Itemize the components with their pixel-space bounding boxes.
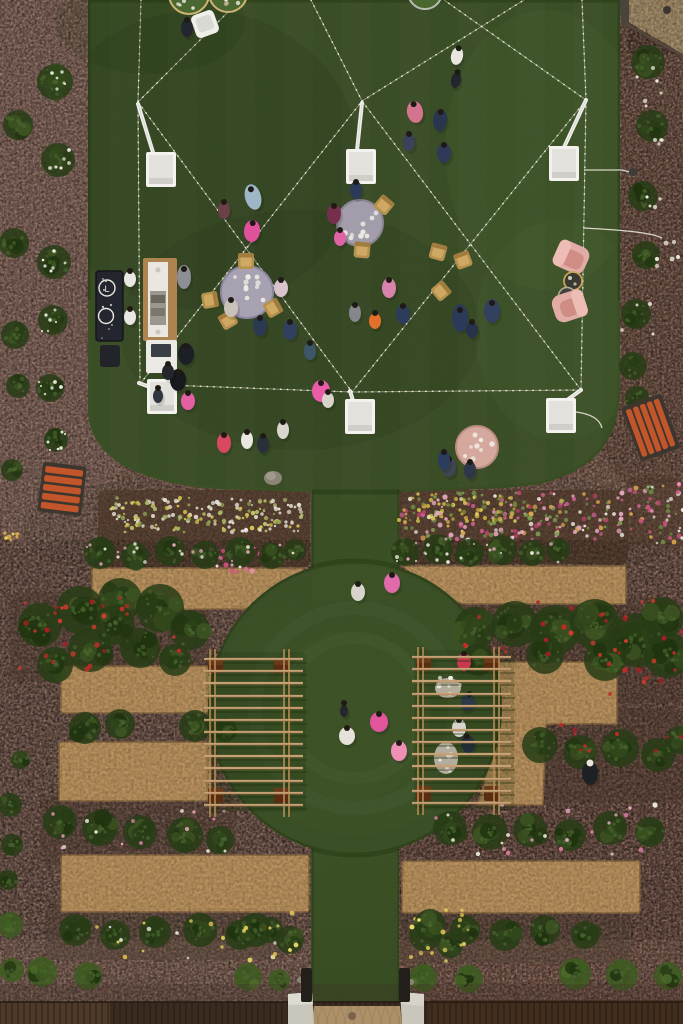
svg-text:L: L: [104, 284, 109, 294]
